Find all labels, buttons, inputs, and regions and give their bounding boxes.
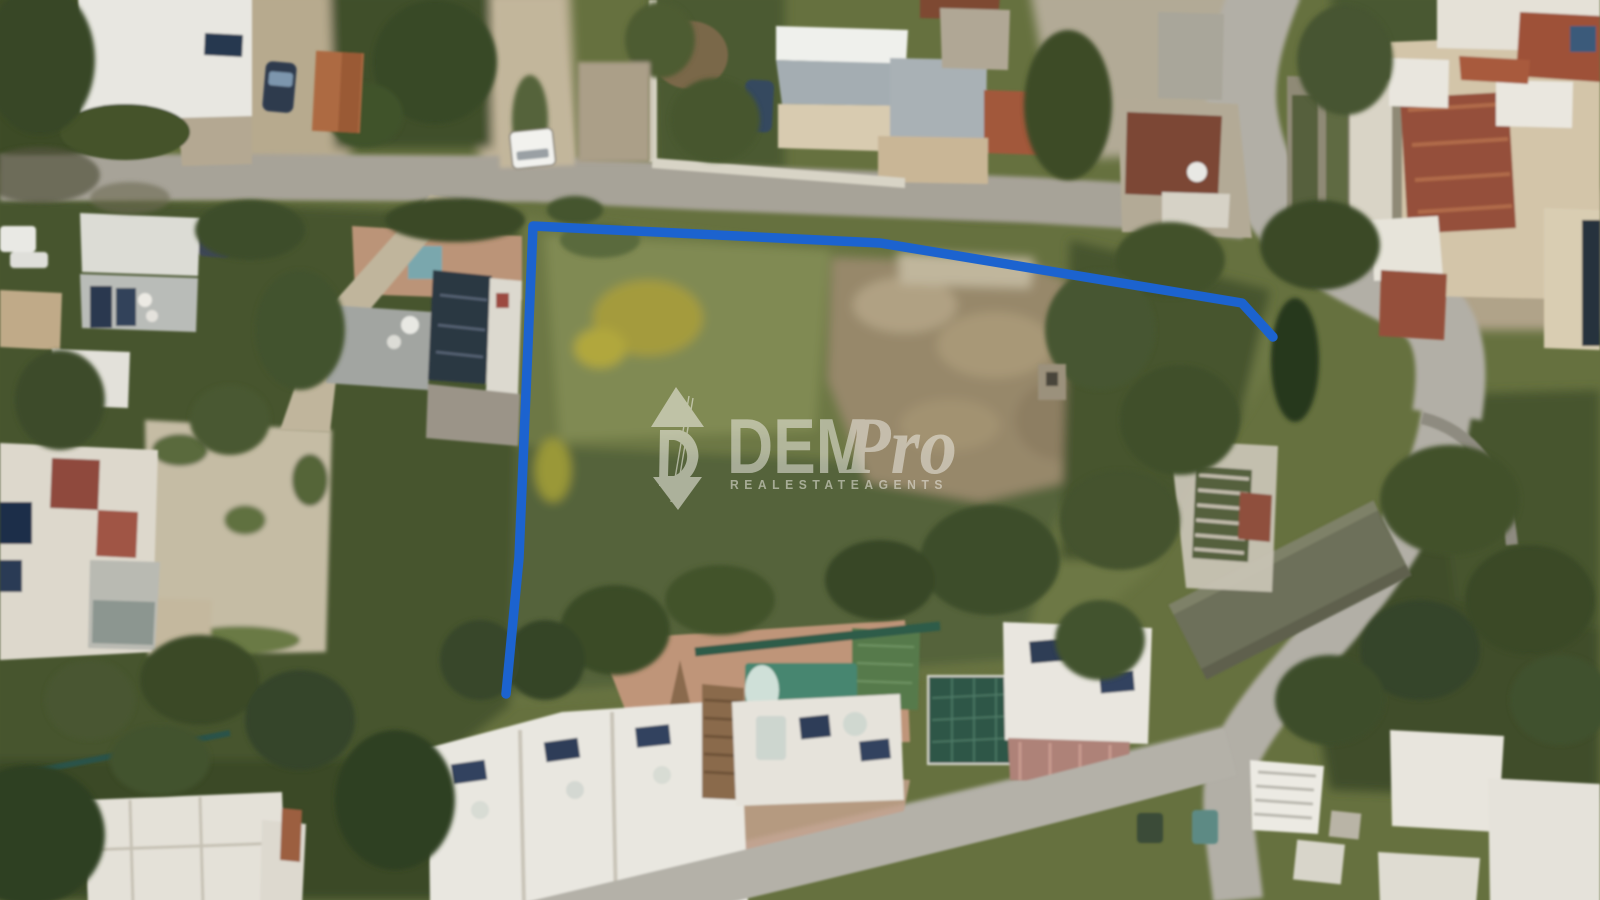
- svg-text:REALESTATEAGENTS: REALESTATEAGENTS: [730, 477, 948, 492]
